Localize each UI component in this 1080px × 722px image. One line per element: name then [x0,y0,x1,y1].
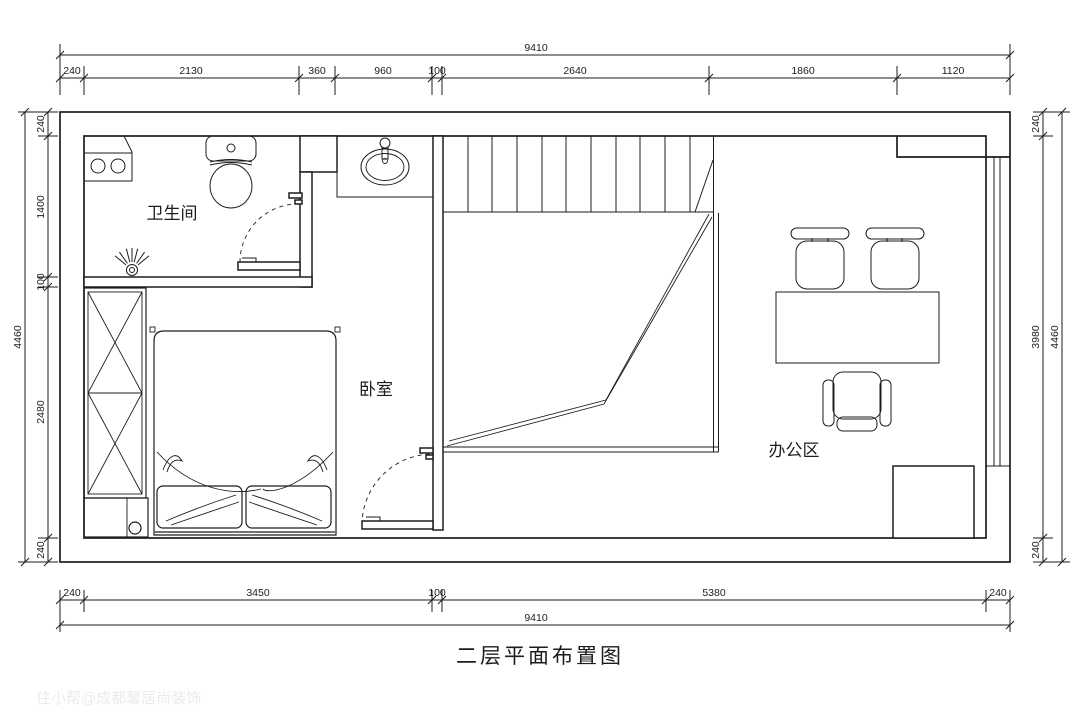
office-desk [776,292,939,363]
dim-label: 1400 [35,195,47,219]
office-furniture [776,228,939,431]
door-jamb [420,448,433,453]
dim-label: 240 [35,115,47,133]
dim-label: 100 [428,587,446,599]
bed-corner-mark [335,327,340,332]
toilet [206,136,256,208]
dim-label: 240 [1030,115,1042,133]
top-right-wall-panel [897,136,1010,157]
door-jamb [289,193,302,198]
stairs [443,136,714,212]
door-swing-arc [240,204,298,262]
bedroom-furniture [84,288,340,537]
pillow [157,486,242,528]
watermark: 住小帮@成都馨居尚装饰 [36,690,201,707]
dim-label: 240 [63,65,81,77]
dim-label: 2640 [563,65,587,77]
toilet-tank [206,136,256,161]
dim-label: 3980 [1030,325,1042,349]
stair-winder-tread [695,160,713,212]
chair-headrest [866,228,924,239]
vanity-counter [337,136,433,197]
door-jamb [295,200,302,204]
room-label-bathroom: 卫生间 [147,204,198,223]
bedside-lamp [129,522,141,534]
dimension-left: 240 1400 100 2480 240 4460 [12,108,58,566]
toilet-flush-button [227,144,235,152]
floor-drain [115,248,149,276]
office-chair [866,228,924,289]
void-diagonal [449,214,709,441]
blanket-curl [163,456,182,472]
dim-label: 9410 [524,42,548,54]
inner-wall [84,136,986,538]
chair-seat [796,241,844,289]
corner-counter [84,136,132,181]
bottom-right-wall-block [893,466,974,538]
armchair-armrest [823,380,834,426]
floor-plan-sheet: 9410 240 2130 360 960 100 2640 1860 1120… [0,0,1080,722]
dim-label: 4460 [12,325,24,349]
dimension-right: 240 3980 240 4460 [1030,108,1070,566]
dim-label: 1120 [942,65,965,77]
chair-headrest [791,228,849,239]
nightstand [84,498,148,537]
dim-label: 100 [428,65,446,77]
faucet [380,138,390,148]
chair-seat [871,241,919,289]
dim-label: 360 [308,65,326,77]
dimension-top: 9410 240 2130 360 960 100 2640 1860 1120 [56,42,1014,95]
bedroom-partition-wall [433,136,443,530]
door-swing-arc [362,454,433,525]
door-leaf [238,262,300,270]
dim-label: 3450 [246,587,270,599]
dim-label: 5380 [702,587,726,599]
dim-label: 960 [374,65,392,77]
bed-corner-mark [150,327,155,332]
dim-label: 2130 [179,65,203,77]
door-leaf [362,521,433,529]
floor-plan-drawing: 9410 240 2130 360 960 100 2640 1860 1120… [0,0,1080,722]
basin-knob [91,159,105,173]
door-jamb [426,455,433,459]
dim-label: 240 [35,541,47,559]
armchair-seat [833,372,881,419]
void-opening [443,136,719,452]
armchair [823,372,891,431]
dim-label: 240 [1030,541,1042,559]
office-chair [791,228,849,289]
sink-basin [361,149,409,185]
dim-label: 100 [35,273,47,291]
dim-label: 9410 [524,612,548,624]
dimension-bottom: 240 3450 100 5380 240 9410 [56,587,1014,632]
walls [60,112,1010,562]
dim-label: 240 [63,587,81,599]
basin-knob [111,159,125,173]
bed [150,327,340,535]
sink-basin-inner [366,154,404,181]
outer-wall [60,112,1010,562]
wardrobe [84,288,146,498]
pillow [246,486,331,528]
bathroom-east-wall [300,172,312,287]
void-diagonal [447,217,712,446]
dim-label: 1860 [791,65,815,77]
dim-label: 240 [989,587,1007,599]
duct-shaft [300,136,337,172]
dim-label: 2480 [35,400,47,424]
bathroom-fixtures [84,136,433,276]
bathroom-south-wall [84,277,312,287]
bathroom-door [238,193,302,270]
room-label-office: 办公区 [769,441,820,460]
toilet-bowl [210,164,252,208]
room-label-bedroom: 卧室 [359,380,393,399]
sink-vanity [337,136,433,197]
dim-label: 4460 [1049,325,1061,349]
bedroom-door [362,448,433,529]
armchair-armrest [880,380,891,426]
drawing-title: 二层平面布置图 [456,644,624,668]
blanket-curl [308,456,327,472]
